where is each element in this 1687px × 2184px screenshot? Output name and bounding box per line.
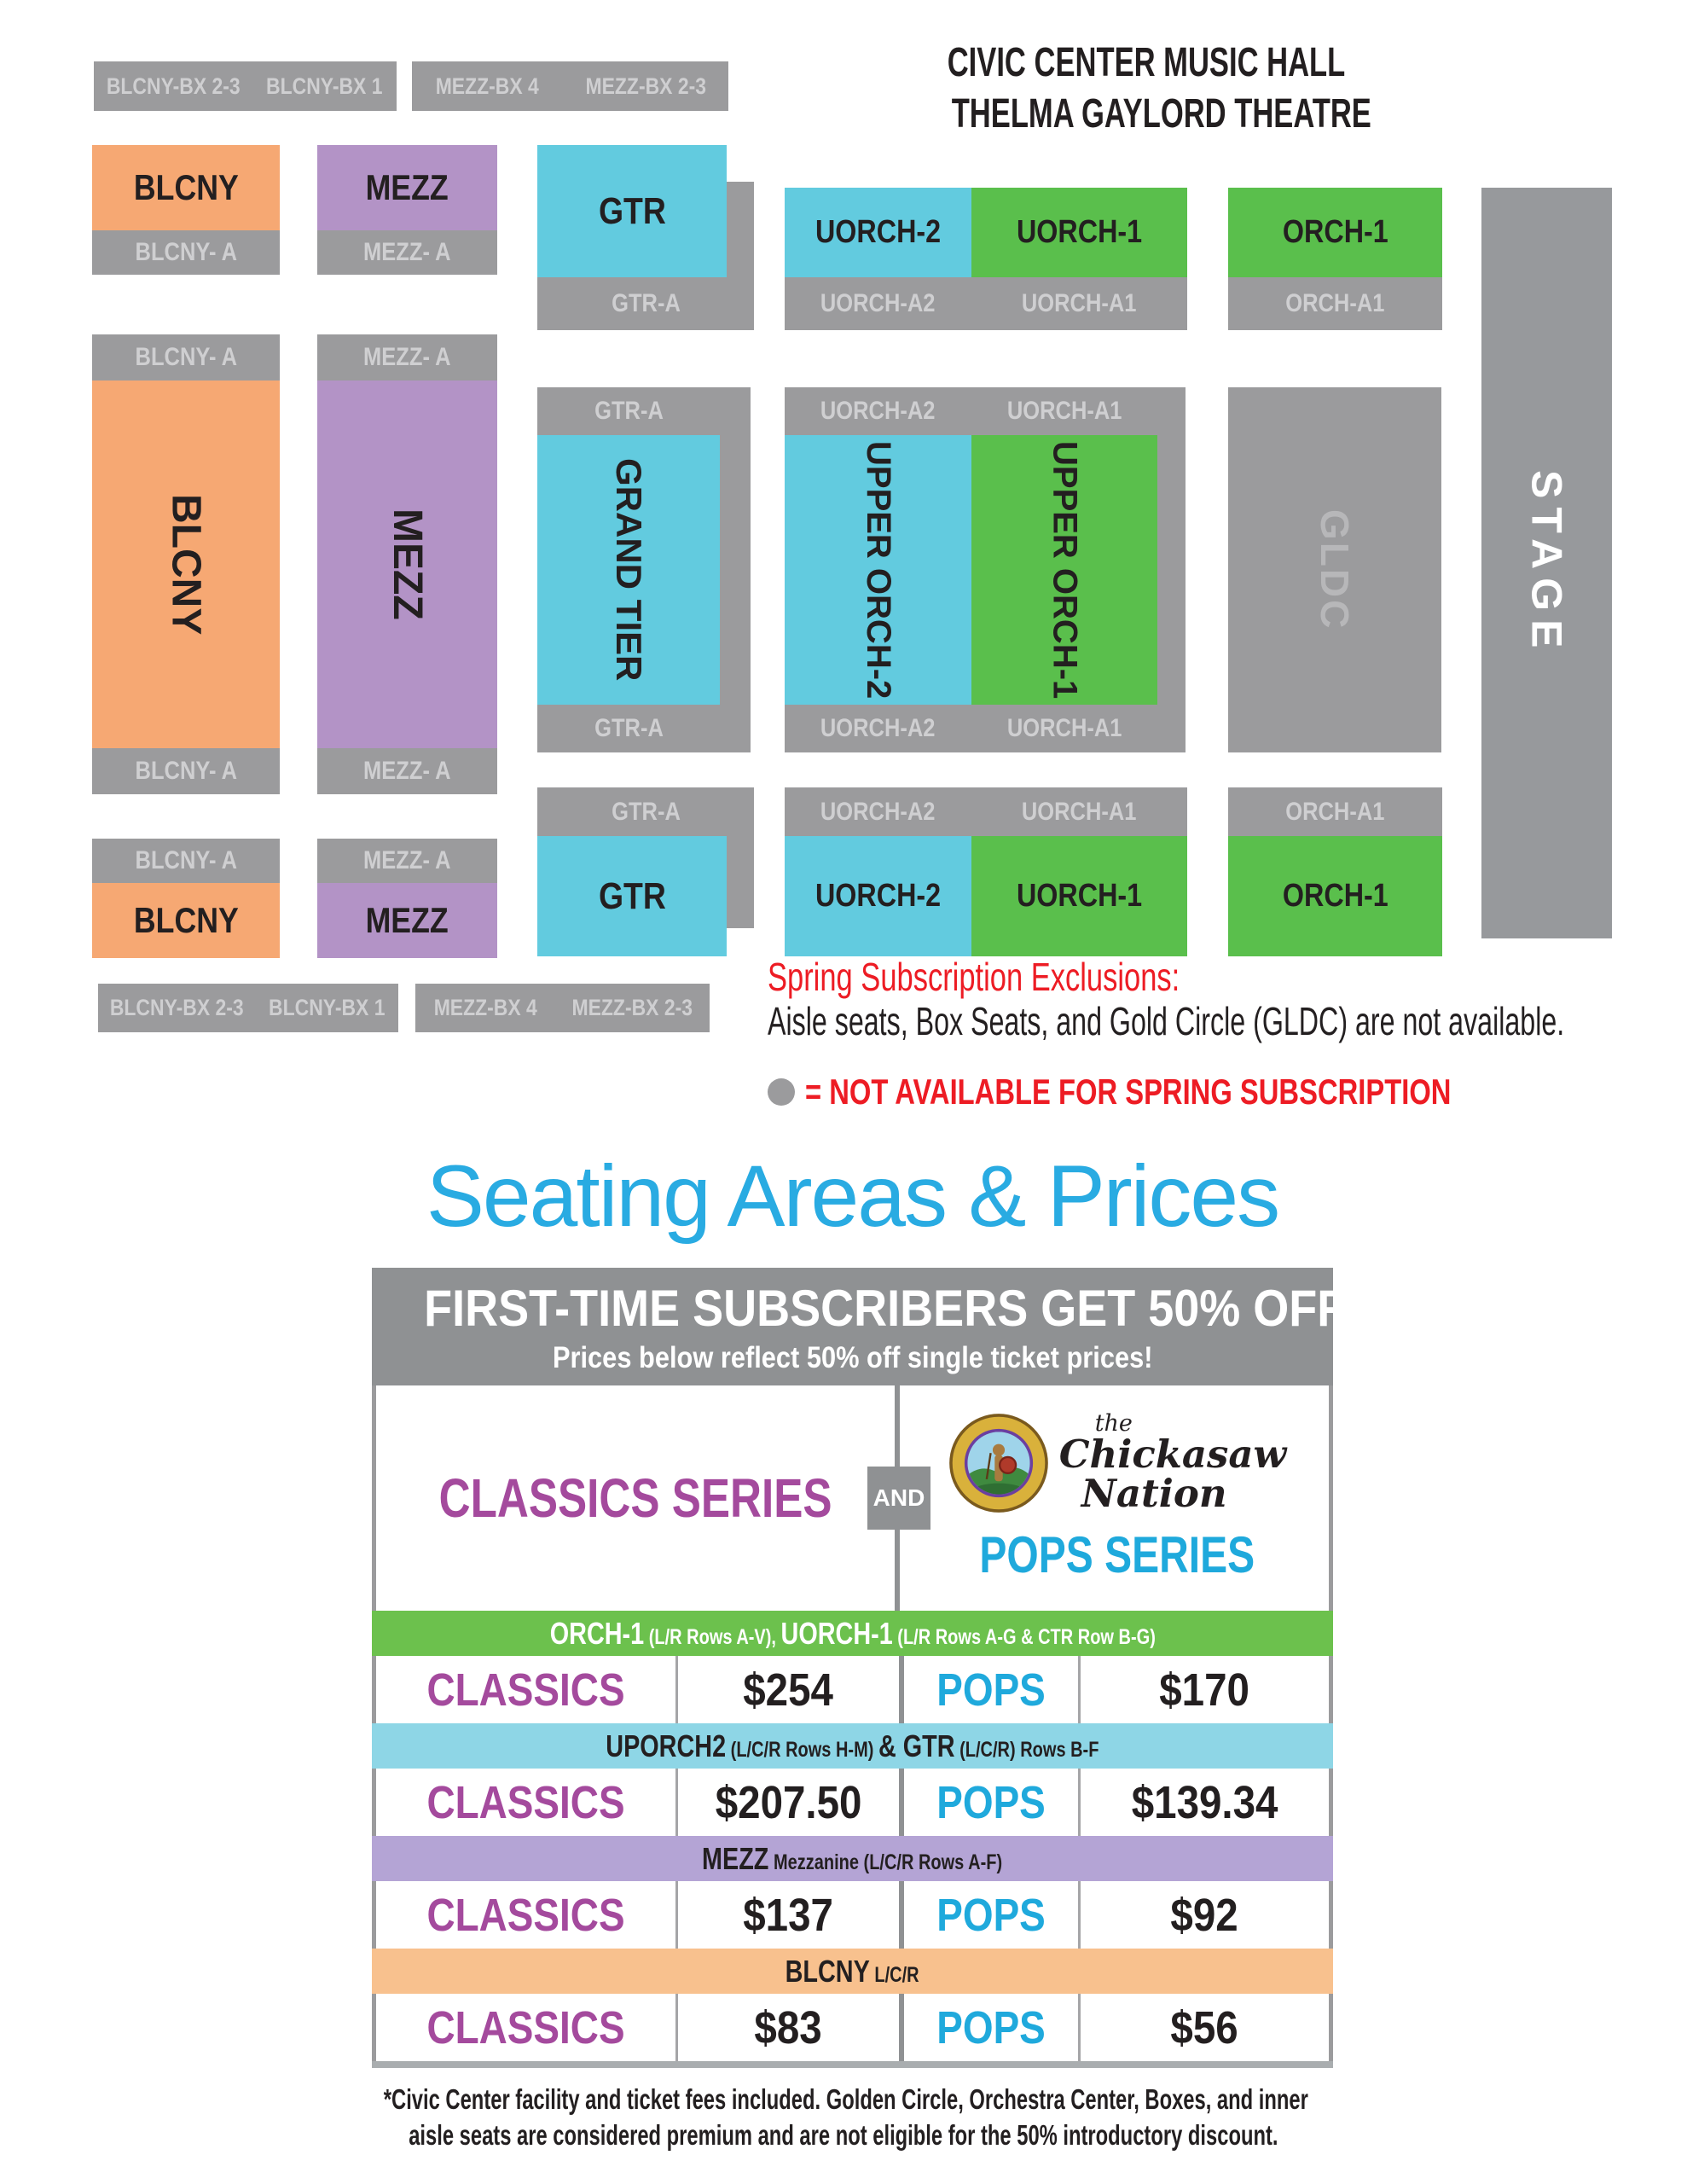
seat-block-orch1-top: ORCH-1	[1228, 188, 1442, 277]
blcny-main-label: BLCNY	[163, 494, 210, 635]
uorch2-top-label: UORCH-2	[815, 214, 941, 251]
pops-label-cell: POPS	[899, 1994, 1078, 2061]
label-mezz-bx-4: MEZZ-BX 4	[436, 73, 539, 100]
label-blcny-bx-1: BLCNY-BX 1	[266, 73, 382, 100]
stage-label: STAGE	[1522, 470, 1572, 657]
classics-label-cell: CLASSICS	[376, 1994, 675, 2061]
seat-block-uorch1-top: UORCH-1	[971, 188, 1187, 277]
pops-series-wrap: POPS SERIES	[945, 1525, 1289, 1584]
aisle-gtr-a-top: GTR-A	[537, 277, 754, 330]
gtr-a-label: GTR-A	[594, 397, 664, 426]
gtr-top-label: GTR	[599, 190, 666, 233]
grand-tier-label: GRAND TIER	[608, 458, 649, 681]
seat-block-mezz-main: MEZZ	[317, 380, 497, 748]
classics-label-cell: CLASSICS	[376, 1881, 675, 1949]
gtr-a-label: GTR-A	[594, 714, 664, 743]
pops-series-label: POPS SERIES	[980, 1525, 1255, 1584]
first-time-banner: FIRST-TIME SUBSCRIBERS GET 50% OFF* Pric…	[372, 1268, 1333, 1385]
seat-block-uorch1-bottom: UORCH-1	[971, 836, 1187, 956]
band-orch1-uorch1: ORCH-1 (L/R Rows A-V), UORCH-1 (L/R Rows…	[372, 1611, 1333, 1656]
label-blcny-bx-2-3: BLCNY-BX 2-3	[110, 995, 244, 1021]
aisle-gtr-a-mid-bottom: GTR-A	[537, 705, 720, 752]
venue-title-line2: THELMA GAYLORD THEATRE	[952, 89, 1371, 140]
uorch-a1-label: UORCH-A1	[1007, 714, 1122, 743]
legend-text: = NOT AVAILABLE FOR SPRING SUBSCRIPTION	[805, 1072, 1451, 1112]
band-text: MEZZ Mezzanine (L/C/R Rows A-F)	[702, 1841, 1002, 1877]
uorch-a1-label: UORCH-A1	[1007, 397, 1122, 426]
band-bold: ORCH-1	[549, 1616, 643, 1651]
pops-series-cell: the Chickasaw Nation POPS SERIES	[901, 1385, 1333, 1611]
exclusions-body-text: Aisle seats, Box Seats, and Gold Circle …	[768, 998, 1564, 1044]
upper-orch1-label: UPPER ORCH-1	[1046, 441, 1084, 699]
aisle-mezz-a-mid-bottom: MEZZ- A	[317, 748, 497, 794]
pops-label-cell: POPS	[899, 1881, 1078, 1949]
footnote-line1: *Civic Center facility and ticket fees i…	[384, 2082, 1308, 2117]
band-small: (L/R Rows A-G & CTR Row B-G)	[892, 1625, 1155, 1649]
label-mezz-bx-2-3: MEZZ-BX 2-3	[572, 995, 693, 1021]
pricing-title: Seating Areas & Prices	[372, 1147, 1333, 1246]
orch-a1-label: ORCH-A1	[1285, 798, 1384, 827]
blcny-a-label: BLCNY- A	[135, 238, 236, 267]
pops-label: POPS	[936, 1889, 1046, 1942]
band-small: L/C/R	[870, 1963, 919, 1987]
flyer-root: BLCNY-BX 2-3 BLCNY-BX 1 MEZZ-BX 4 MEZZ-B…	[0, 0, 1687, 2184]
pops-price: $56	[1171, 2001, 1238, 2054]
band-bold: MEZZ	[702, 1841, 768, 1876]
band-bold: UPORCH2	[606, 1728, 726, 1763]
orch1-top-label: ORCH-1	[1283, 214, 1388, 251]
aisle-orch-a1-bottom: ORCH-A1	[1228, 787, 1442, 836]
band-bold: & GTR	[878, 1728, 955, 1763]
pops-label-cell: POPS	[899, 1656, 1078, 1723]
uorch-a2-label: UORCH-A2	[820, 798, 936, 827]
uorch1-bottom-label: UORCH-1	[1017, 878, 1142, 915]
footnote-line2: aisle seats are considered premium and a…	[409, 2117, 1278, 2153]
legend-text-wrap: = NOT AVAILABLE FOR SPRING SUBSCRIPTION	[805, 1072, 1633, 1112]
pops-label: POPS	[936, 1664, 1046, 1716]
aisle-blcny-a-mid-bottom: BLCNY- A	[92, 748, 280, 794]
orch1-bottom-label: ORCH-1	[1283, 878, 1388, 915]
aisle-mezz-a-top: MEZZ- A	[317, 230, 497, 275]
price-row-blcny: CLASSICS $83 POPS $56	[372, 1994, 1333, 2061]
classics-price: $207.50	[716, 1776, 862, 1829]
aisle-uorch-a-top: UORCH-A2 UORCH-A1	[785, 277, 1187, 330]
band-uporch2-gtr: UPORCH2 (L/C/R Rows H-M) & GTR (L/C/R) R…	[372, 1723, 1333, 1769]
pricing-title-text: Seating Areas & Prices	[426, 1147, 1278, 1245]
logo-chickasaw: Chickasaw	[1059, 1435, 1287, 1474]
pops-price: $139.34	[1132, 1776, 1278, 1829]
grand-tier-container: GTR-A GRAND TIER GTR-A	[537, 387, 751, 752]
aisle-blcny-a-mid-top: BLCNY- A	[92, 334, 280, 380]
classics-label: CLASSICS	[426, 1776, 624, 1829]
classics-price: $83	[755, 2001, 822, 2054]
seat-block-mezz-top: MEZZ	[317, 145, 497, 230]
label-blcny-bx-1: BLCNY-BX 1	[269, 995, 385, 1021]
banner-line1: FIRST-TIME SUBSCRIBERS GET 50% OFF*	[424, 1279, 1363, 1338]
seat-block-blcny-top: BLCNY	[92, 145, 280, 230]
classics-label: CLASSICS	[426, 1664, 624, 1716]
band-small: (L/R Rows A-V),	[644, 1625, 780, 1649]
mezz-a-label: MEZZ- A	[363, 846, 450, 875]
gtr-bottom-label: GTR	[599, 875, 666, 918]
seat-block-grand-tier: GRAND TIER	[537, 435, 720, 705]
classics-price-cell: $137	[675, 1881, 899, 1949]
exclusions-body: Aisle seats, Box Seats, and Gold Circle …	[768, 998, 1687, 1044]
seat-block-uorch2-top: UORCH-2	[785, 188, 971, 277]
band-mezz: MEZZ Mezzanine (L/C/R Rows A-F)	[372, 1836, 1333, 1881]
pops-price: $92	[1171, 1889, 1238, 1942]
venue-title: CIVIC CENTER MUSIC HALL THELMA GAYLORD T…	[870, 38, 1382, 140]
gtr-a-label: GTR-A	[612, 798, 681, 827]
classics-price-cell: $207.50	[675, 1769, 899, 1836]
pops-label: POPS	[936, 1776, 1046, 1829]
band-text: UPORCH2 (L/C/R Rows H-M) & GTR (L/C/R) R…	[606, 1728, 1099, 1764]
aisle-gtr-a-mid-top: GTR-A	[537, 387, 720, 435]
seat-block-upper-orch2: UPPER ORCH-2	[785, 435, 971, 705]
banner-line2: Prices below reflect 50% off single tick…	[553, 1341, 1153, 1375]
band-small: (L/C/R Rows H-M)	[726, 1738, 878, 1762]
mezz-a-label: MEZZ- A	[363, 343, 450, 372]
aisle-mezz-a-mid-top: MEZZ- A	[317, 334, 497, 380]
box-bar-balcony-top: BLCNY-BX 2-3 BLCNY-BX 1	[94, 61, 397, 111]
series-header-row: CLASSICS SERIES AND	[372, 1385, 1333, 1611]
venue-title-line1: CIVIC CENTER MUSIC HALL	[948, 38, 1346, 89]
legend-row: = NOT AVAILABLE FOR SPRING SUBSCRIPTION	[768, 1072, 1633, 1112]
seat-block-uorch2-bottom: UORCH-2	[785, 836, 971, 956]
uorch-a2-label: UORCH-A2	[820, 714, 936, 743]
classics-label: CLASSICS	[426, 2001, 624, 2054]
label-mezz-bx-4: MEZZ-BX 4	[434, 995, 537, 1021]
footnote: *Civic Center facility and ticket fees i…	[204, 2082, 1483, 2153]
classics-price: $137	[744, 1889, 834, 1942]
mezz-top-label: MEZZ	[366, 167, 449, 208]
uorch-a1-label: UORCH-A1	[1022, 289, 1137, 318]
seat-block-orch1-bottom: ORCH-1	[1228, 836, 1442, 956]
band-bold: BLCNY	[786, 1954, 870, 1989]
classics-label: CLASSICS	[426, 1889, 624, 1942]
orch-a1-label: ORCH-A1	[1285, 289, 1384, 318]
classics-series-label: CLASSICS SERIES	[439, 1467, 832, 1530]
logo-nation: Nation	[1081, 1474, 1287, 1513]
band-small: Mezzanine (L/C/R Rows A-F)	[769, 1850, 1003, 1874]
seat-block-blcny-main: BLCNY	[92, 380, 280, 748]
seat-block-mezz-bottom: MEZZ	[317, 883, 497, 958]
classics-series-cell: CLASSICS SERIES	[376, 1385, 895, 1611]
aisle-gtr-a-bottom: GTR-A	[537, 787, 754, 836]
not-available-dot-icon	[768, 1078, 795, 1106]
seat-block-gldc: GLDC	[1228, 387, 1441, 752]
seat-block-upper-orch1: UPPER ORCH-1	[971, 435, 1157, 705]
blcny-a-label: BLCNY- A	[135, 757, 236, 786]
gldc-label: GLDC	[1312, 509, 1358, 630]
stage-block: STAGE	[1481, 188, 1612, 938]
mezz-main-label: MEZZ	[384, 508, 431, 620]
aisle-uorch-a-bottom: UORCH-A2 UORCH-A1	[785, 787, 1187, 836]
pops-label: POPS	[936, 2001, 1046, 2054]
seat-block-gtr-top: GTR	[537, 145, 727, 277]
exclusions-heading: Spring Subscription Exclusions:	[768, 954, 1317, 1000]
uorch-a1-label: UORCH-A1	[1022, 798, 1137, 827]
aisle-uorch-mid-bottom: UORCH-A2 UORCH-A1	[785, 705, 1157, 752]
aisle-orch-a1-top: ORCH-A1	[1228, 277, 1442, 330]
exclusions-heading-text: Spring Subscription Exclusions:	[768, 954, 1180, 1000]
pops-price: $170	[1160, 1664, 1250, 1716]
classics-label-cell: CLASSICS	[376, 1656, 675, 1723]
aisle-uorch-mid-top: UORCH-A2 UORCH-A1	[785, 387, 1157, 435]
gtr-a-label: GTR-A	[612, 289, 681, 318]
blcny-a-label: BLCNY- A	[135, 343, 236, 372]
aisle-blcny-a-top: BLCNY- A	[92, 230, 280, 275]
pricing-table: FIRST-TIME SUBSCRIBERS GET 50% OFF* Pric…	[372, 1268, 1333, 2068]
uorch1-top-label: UORCH-1	[1017, 214, 1142, 251]
aisle-mezz-a-bottom: MEZZ- A	[317, 839, 497, 883]
box-bar-balcony-bottom: BLCNY-BX 2-3 BLCNY-BX 1	[98, 984, 398, 1032]
mezz-a-label: MEZZ- A	[363, 757, 450, 786]
classics-series-wrap: CLASSICS SERIES	[390, 1467, 881, 1530]
price-row-uporch2: CLASSICS $207.50 POPS $139.34	[372, 1769, 1333, 1836]
pops-price-cell: $92	[1078, 1881, 1329, 1949]
pops-price-cell: $139.34	[1078, 1769, 1329, 1836]
uorch-a2-label: UORCH-A2	[820, 289, 936, 318]
upper-orch2-label: UPPER ORCH-2	[859, 441, 897, 699]
price-row-orch1: CLASSICS $254 POPS $170	[372, 1656, 1333, 1723]
blcny-a-label: BLCNY- A	[135, 846, 236, 875]
band-text: BLCNY L/C/R	[786, 1954, 919, 1989]
classics-price: $254	[744, 1664, 834, 1716]
chickasaw-seal-icon	[948, 1413, 1049, 1513]
pops-price-cell: $56	[1078, 1994, 1329, 2061]
band-text: ORCH-1 (L/R Rows A-V), UORCH-1 (L/R Rows…	[549, 1616, 1155, 1652]
blcny-top-label: BLCNY	[134, 167, 239, 208]
upper-orch-container: UORCH-A2 UORCH-A1 UPPER ORCH-2 UPPER ORC…	[785, 387, 1186, 752]
aisle-strip-gtr-bottom	[727, 836, 754, 928]
uorch-a2-label: UORCH-A2	[820, 397, 936, 426]
label-mezz-bx-2-3: MEZZ-BX 2-3	[585, 73, 706, 100]
seat-block-gtr-bottom: GTR	[537, 836, 727, 956]
mezz-bottom-label: MEZZ	[366, 900, 449, 941]
price-row-mezz: CLASSICS $137 POPS $92	[372, 1881, 1333, 1949]
aisle-strip-gtr-top	[727, 182, 754, 277]
chickasaw-wordmark: the Chickasaw Nation	[1059, 1412, 1287, 1513]
pops-label-cell: POPS	[899, 1769, 1078, 1836]
band-small: (L/C/R) Rows B-F	[955, 1738, 1099, 1762]
box-bar-mezz-top: MEZZ-BX 4 MEZZ-BX 2-3	[412, 61, 728, 111]
classics-price-cell: $254	[675, 1656, 899, 1723]
seat-block-blcny-bottom: BLCNY	[92, 883, 280, 958]
classics-price-cell: $83	[675, 1994, 899, 2061]
band-bold: UORCH-1	[780, 1616, 892, 1651]
uorch2-bottom-label: UORCH-2	[815, 878, 941, 915]
chickasaw-logo-row: the Chickasaw Nation	[948, 1412, 1287, 1513]
blcny-bottom-label: BLCNY	[134, 900, 239, 941]
classics-label-cell: CLASSICS	[376, 1769, 675, 1836]
box-bar-mezz-bottom: MEZZ-BX 4 MEZZ-BX 2-3	[415, 984, 710, 1032]
band-blcny: BLCNY L/C/R	[372, 1949, 1333, 1994]
aisle-blcny-a-bottom: BLCNY- A	[92, 839, 280, 883]
pops-price-cell: $170	[1078, 1656, 1329, 1723]
mezz-a-label: MEZZ- A	[363, 238, 450, 267]
label-blcny-bx-2-3: BLCNY-BX 2-3	[107, 73, 241, 100]
